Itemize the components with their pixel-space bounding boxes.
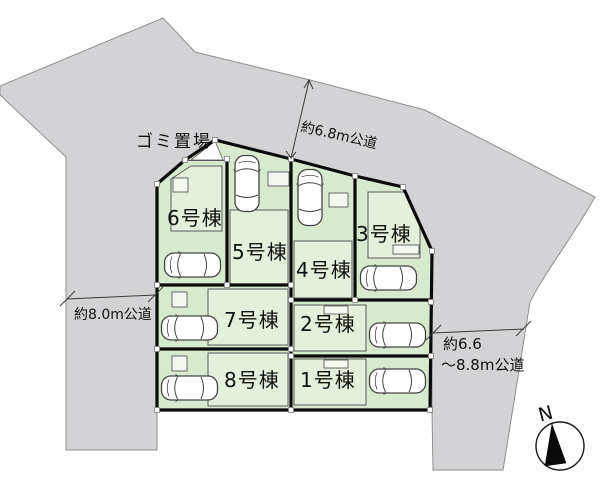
road-left-label: 約8.0m公道 [74, 307, 152, 323]
porch-7 [172, 292, 187, 307]
unit-7-label: 7号棟 [224, 308, 280, 332]
site-plan: N ゴミ置場 約6.8m公道 約8.0m公道 約6.6 ～8.8m公道 6号棟 … [0, 0, 600, 477]
road-right-label-line1: 約6.6 [443, 335, 482, 353]
unit-5-label: 5号棟 [232, 240, 288, 264]
porch-6 [173, 178, 188, 192]
garbage-area-label: ゴミ置場 [136, 131, 212, 152]
unit-4-label: 4号棟 [296, 258, 352, 282]
car-unit-3 [361, 265, 417, 292]
porch-5 [268, 172, 289, 186]
compass-icon: N [536, 402, 584, 470]
car-unit-6 [165, 252, 221, 279]
porch-8 [172, 356, 187, 371]
compass-north-label: N [536, 402, 555, 427]
porch-4 [329, 193, 348, 207]
porch-3 [393, 245, 419, 254]
road-right-label-line2: ～8.8m公道 [441, 356, 524, 374]
car-unit-4 [297, 170, 324, 226]
car-unit-7 [162, 315, 218, 342]
site-plan-drawing: N ゴミ置場 約6.8m公道 約8.0m公道 約6.6 ～8.8m公道 6号棟 … [0, 0, 600, 477]
unit-3-label: 3号棟 [356, 222, 412, 246]
unit-2-label: 2号棟 [300, 312, 356, 336]
unit-8-label: 8号棟 [224, 368, 280, 392]
car-unit-5 [234, 156, 261, 212]
porch-1 [324, 360, 348, 368]
unit-6-label: 6号棟 [167, 206, 223, 230]
car-unit-2 [370, 322, 426, 349]
unit-1-label: 1号棟 [300, 368, 356, 392]
car-unit-1 [370, 368, 426, 395]
car-unit-8 [162, 375, 218, 402]
